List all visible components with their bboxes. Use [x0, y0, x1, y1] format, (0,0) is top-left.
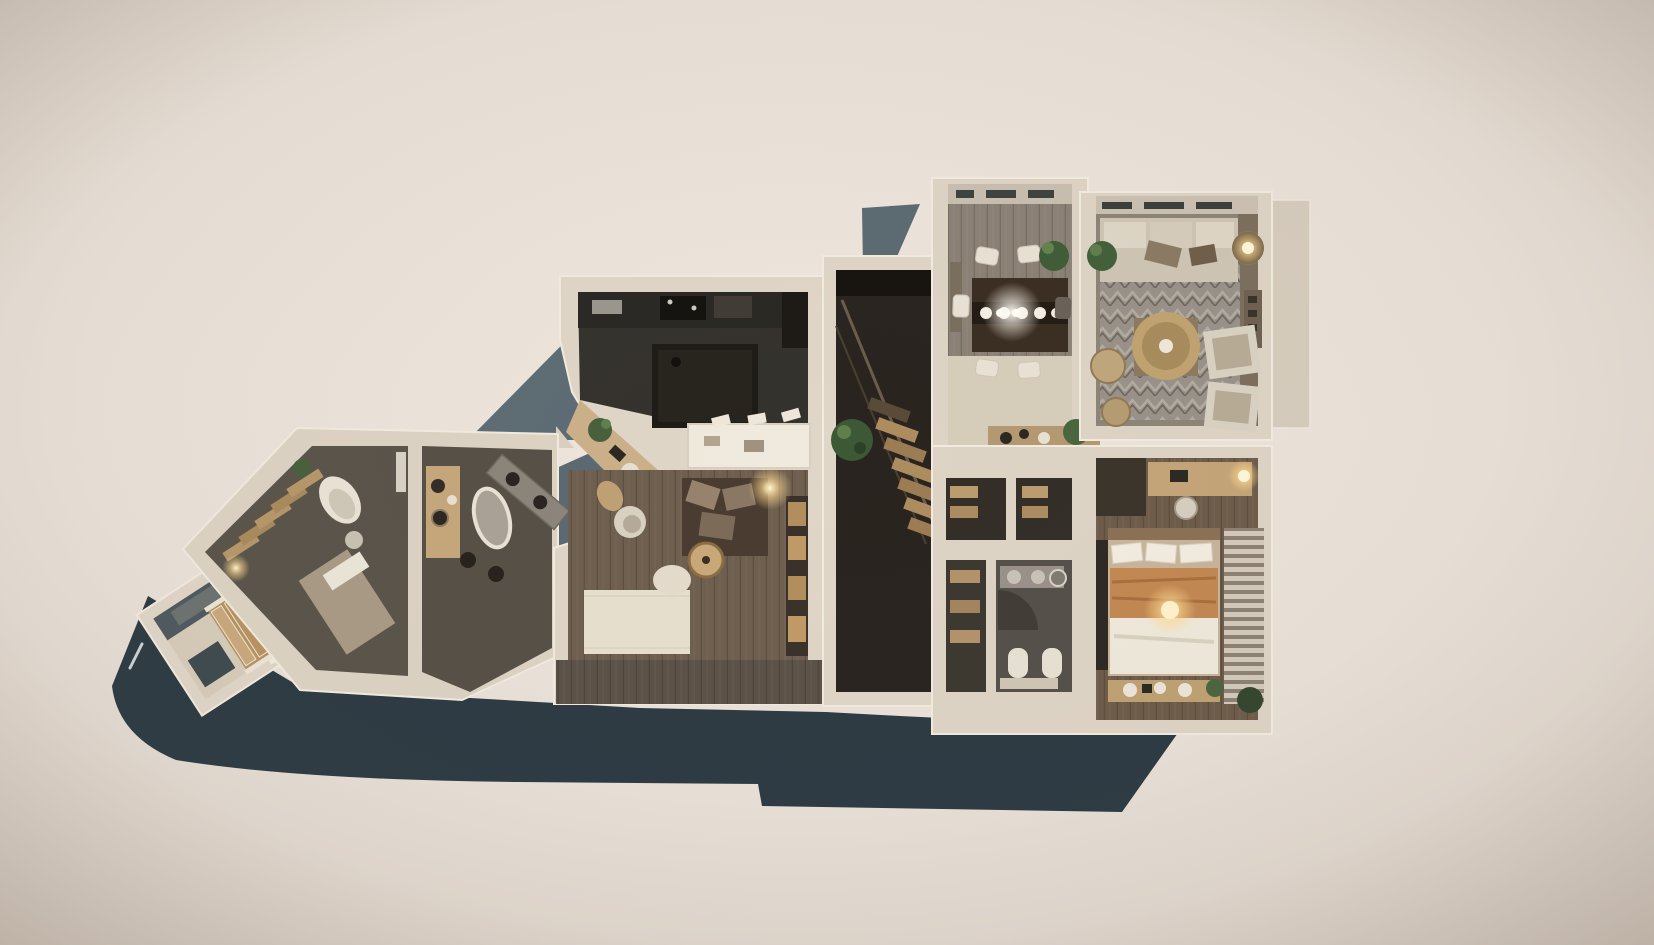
- vignette: [0, 0, 1654, 945]
- floorplan-svg: [0, 0, 1654, 945]
- floorplan-render: [0, 0, 1654, 945]
